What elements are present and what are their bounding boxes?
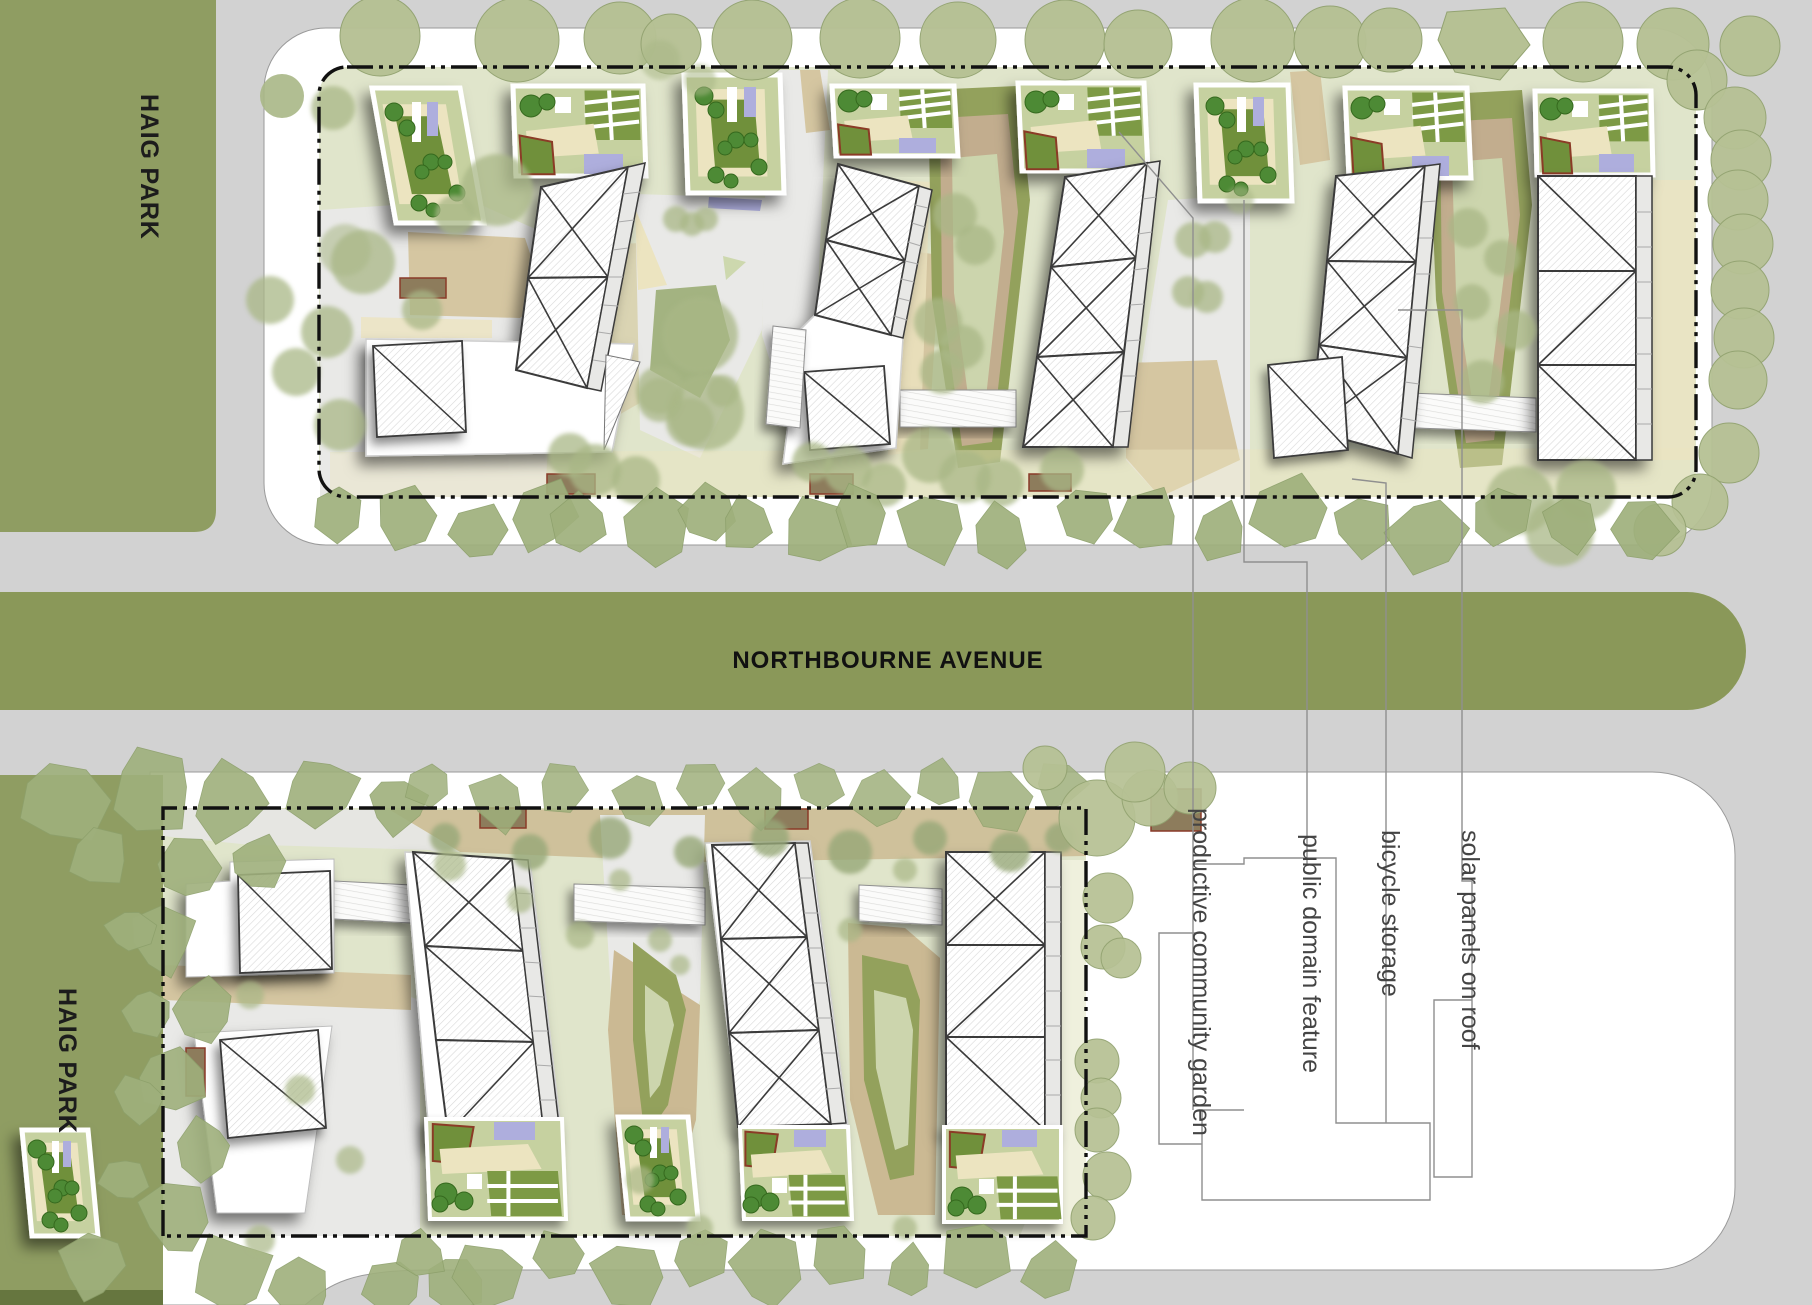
svg-text:productive community garden: productive community garden (1187, 808, 1215, 1136)
svg-text:HAIG PARK: HAIG PARK (135, 94, 163, 240)
svg-text:HAIG PARK: HAIG PARK (53, 988, 81, 1134)
svg-text:bicycle storage: bicycle storage (1376, 830, 1404, 997)
svg-text:public domain feature: public domain feature (1297, 834, 1325, 1073)
svg-text:NORTHBOURNE AVENUE: NORTHBOURNE AVENUE (732, 647, 1043, 674)
svg-text:solar panels on roof: solar panels on roof (1456, 830, 1484, 1050)
